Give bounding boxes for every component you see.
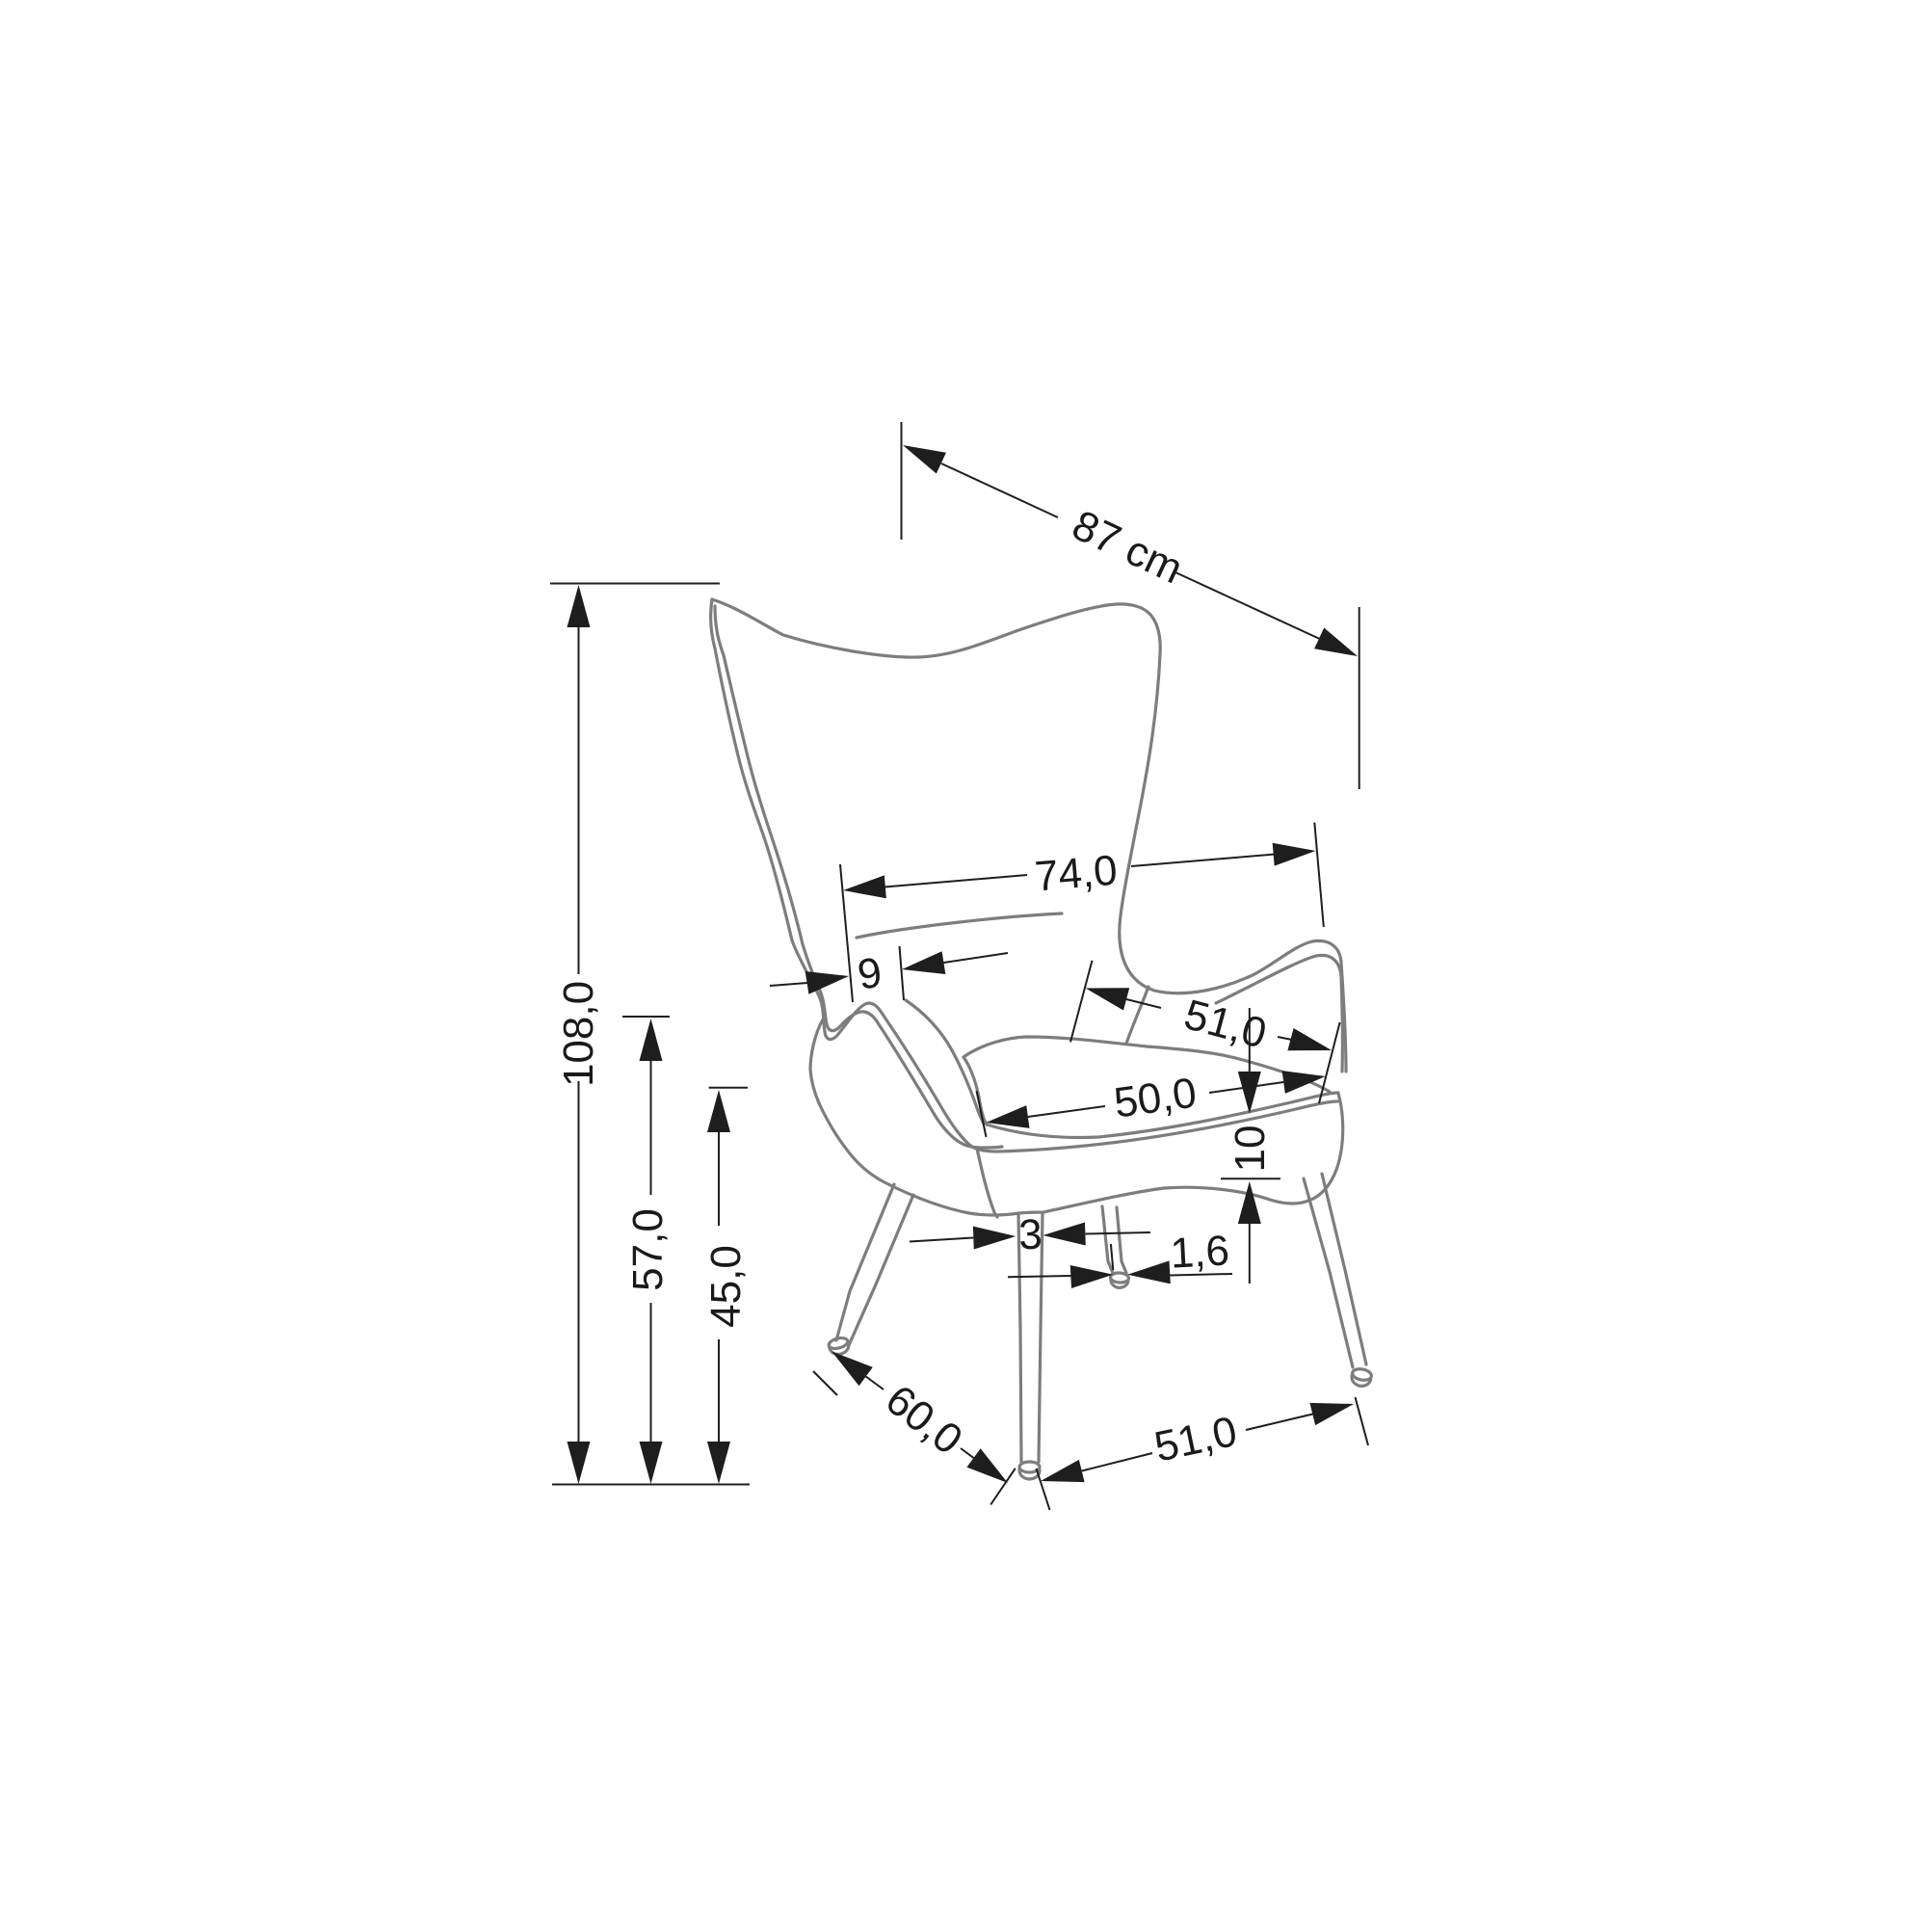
svg-text:74,0: 74,0 <box>1033 847 1119 901</box>
svg-text:3: 3 <box>1017 1211 1043 1259</box>
svg-text:45,0: 45,0 <box>702 1245 750 1328</box>
svg-text:1,6: 1,6 <box>1169 1227 1230 1277</box>
svg-text:10: 10 <box>1227 1125 1274 1173</box>
svg-text:108,0: 108,0 <box>555 981 602 1087</box>
svg-text:57,0: 57,0 <box>624 1208 672 1291</box>
